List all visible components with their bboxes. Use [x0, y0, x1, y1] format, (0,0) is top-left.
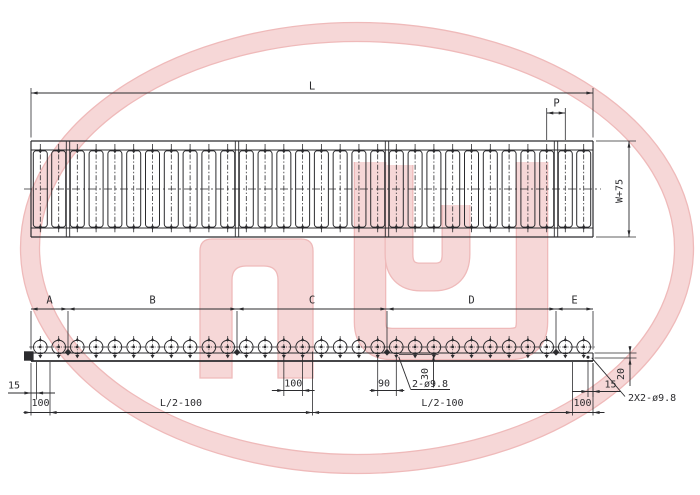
axle-arrow-down	[563, 355, 567, 358]
axle-center-dot	[320, 346, 322, 348]
roller-axle-mark	[489, 148, 493, 153]
axle-arrow-down	[582, 355, 586, 358]
joint-marker-diamond	[553, 349, 560, 356]
axle-center-dot	[133, 346, 135, 348]
roller-axle-mark	[357, 148, 361, 153]
roller-end	[104, 336, 126, 358]
roller-axle-mark	[507, 225, 511, 230]
axle-arrow-up	[244, 338, 248, 341]
axle-center-dot	[245, 346, 247, 348]
axle-center-dot	[283, 346, 285, 348]
roller-end	[179, 336, 201, 358]
axle-arrow-up	[132, 338, 136, 341]
roller-axle-mark	[132, 225, 136, 230]
roller-axle-mark	[188, 148, 192, 153]
roller-axle-mark	[245, 225, 249, 230]
arrowhead	[230, 308, 237, 311]
arrowhead	[31, 92, 38, 95]
roller-axle-mark	[170, 225, 174, 230]
axle-arrow-up	[263, 338, 267, 341]
axle-arrow-up	[319, 338, 323, 341]
roller-end	[235, 336, 257, 358]
roller-axle-mark	[545, 148, 549, 153]
axle-center-dot	[358, 346, 360, 348]
axle-arrow-up	[169, 338, 173, 341]
arrowhead	[547, 112, 554, 115]
arrowhead	[37, 392, 44, 395]
logo-letter-h	[200, 239, 313, 378]
roller-axle-mark	[582, 225, 586, 230]
roller-axle-mark	[413, 148, 417, 153]
roller-axle-mark	[489, 225, 493, 230]
axle-center-dot	[39, 346, 41, 348]
arrowhead	[387, 308, 394, 311]
roller-axle-mark	[320, 225, 324, 230]
roller-end	[142, 336, 164, 358]
axle-center-dot	[95, 346, 97, 348]
axle-center-dot	[58, 346, 60, 348]
roller-axle-mark	[526, 148, 530, 153]
axle-center-dot	[508, 346, 510, 348]
end-mounting-hole	[587, 356, 590, 359]
dim-label-width: W+75	[615, 179, 626, 203]
axle-arrow-up	[151, 338, 155, 341]
axle-center-dot	[546, 346, 548, 348]
dim-label-right-hole-pitch: 100	[573, 398, 591, 409]
axle-arrow-up	[113, 338, 117, 341]
roller-end	[85, 336, 107, 358]
axle-center-dot	[527, 346, 529, 348]
arrowhead	[24, 392, 31, 395]
axle-center-dot	[339, 346, 341, 348]
logo-letter-q-tail	[399, 165, 456, 277]
arrowhead	[68, 308, 75, 311]
arrowhead	[303, 389, 310, 392]
axle-center-dot	[564, 346, 566, 348]
conveyor-plan-view	[24, 141, 601, 237]
roller-axle-mark	[151, 148, 155, 153]
roller-axle-mark	[320, 148, 324, 153]
roller-axle-mark	[57, 225, 61, 230]
roller-axle-mark	[94, 148, 98, 153]
roller-axle-mark	[226, 225, 230, 230]
axle-center-dot	[301, 346, 303, 348]
axle-arrow-down	[38, 355, 42, 358]
technical-drawing-canvas: LPW+75ABCDE10090302-ø9.820152X2-ø9.81510…	[0, 0, 700, 495]
axle-center-dot	[470, 346, 472, 348]
arrowhead	[586, 308, 593, 311]
arrowhead	[371, 389, 378, 392]
end-stop-plate	[24, 351, 34, 360]
axle-center-dot	[170, 346, 172, 348]
arrowhead	[50, 411, 57, 414]
arrowhead	[396, 389, 403, 392]
roller-axle-mark	[432, 148, 436, 153]
arrowhead	[237, 308, 244, 311]
arrowhead	[549, 308, 556, 311]
roller-axle-mark	[432, 225, 436, 230]
dim-label-end-hole-depth: 20	[616, 368, 627, 380]
roller-axle-mark	[564, 225, 568, 230]
roller-axle-mark	[507, 148, 511, 153]
roller-axle-mark	[395, 148, 399, 153]
axle-center-dot	[452, 346, 454, 348]
axle-center-dot	[395, 346, 397, 348]
roller-axle-mark	[113, 148, 117, 153]
arrowhead	[556, 308, 563, 311]
roller-end	[123, 336, 145, 358]
roller-axle-mark	[582, 148, 586, 153]
roller-axle-mark	[301, 148, 305, 153]
roller-axle-mark	[338, 148, 342, 153]
section-label-c: C	[309, 295, 315, 307]
joint-marker-diamond	[234, 349, 241, 356]
roller-end	[329, 336, 351, 358]
arrowhead	[277, 389, 284, 392]
axle-arrow-down	[263, 355, 267, 358]
axle-arrow-down	[319, 355, 323, 358]
roller-axle-mark	[39, 148, 43, 153]
axle-arrow-up	[582, 338, 586, 341]
dim-label-right-half-length: L/2-100	[421, 398, 463, 409]
roller-axle-mark	[282, 148, 286, 153]
roller-end	[254, 336, 276, 358]
axle-center-dot	[264, 346, 266, 348]
axle-arrow-up	[188, 338, 192, 341]
roller-axle-mark	[151, 225, 155, 230]
roller-axle-mark	[94, 225, 98, 230]
axle-center-dot	[208, 346, 210, 348]
roller-axle-mark	[226, 148, 230, 153]
section-label-d: D	[468, 295, 474, 307]
arrowhead	[24, 411, 31, 414]
roller-axle-mark	[132, 148, 136, 153]
arrowhead	[313, 411, 320, 414]
roller-end	[573, 336, 595, 358]
axle-arrow-down	[113, 355, 117, 358]
roller-axle-mark	[263, 225, 267, 230]
dim-label-left-end-hole: 15	[8, 381, 20, 392]
dim-label-left-hole-pitch: 100	[31, 398, 49, 409]
roller-axle-mark	[564, 148, 568, 153]
dim-label-mid-pitch: 100	[284, 379, 302, 390]
axle-center-dot	[433, 346, 435, 348]
axle-center-dot	[414, 346, 416, 348]
axle-center-dot	[489, 346, 491, 348]
arrowhead	[628, 230, 631, 237]
arrowhead	[559, 112, 566, 115]
dim-label-pitch: P	[553, 98, 559, 110]
axle-arrow-down	[57, 355, 61, 358]
arrowhead	[61, 308, 68, 311]
roller-axle-mark	[301, 225, 305, 230]
axle-center-dot	[583, 346, 585, 348]
axle-center-dot	[151, 346, 153, 348]
note-joint-holes: 2-ø9.8	[412, 379, 448, 390]
arrowhead	[593, 411, 600, 414]
roller-axle-mark	[170, 148, 174, 153]
roller-axle-mark	[413, 225, 417, 230]
note-end-holes: 2X2-ø9.8	[628, 393, 676, 404]
roller-axle-mark	[245, 148, 249, 153]
roller-axle-mark	[338, 225, 342, 230]
roller-end	[160, 336, 182, 358]
roller-axle-mark	[113, 225, 117, 230]
roller-axle-mark	[207, 148, 211, 153]
axle-center-dot	[76, 346, 78, 348]
roller-axle-mark	[451, 148, 455, 153]
section-label-e: E	[571, 295, 577, 307]
axle-center-dot	[189, 346, 191, 348]
axle-arrow-down	[545, 355, 549, 358]
roller-axle-mark	[188, 225, 192, 230]
roller-end	[310, 336, 332, 358]
roller-conveyor-drawing: LPW+75ABCDE10090302-ø9.820152X2-ø9.81510…	[0, 0, 700, 495]
axle-arrow-up	[75, 338, 79, 341]
axle-arrow-down	[188, 355, 192, 358]
axle-arrow-up	[38, 338, 42, 341]
axle-arrow-down	[132, 355, 136, 358]
axle-arrow-down	[338, 355, 342, 358]
axle-arrow-up	[94, 338, 98, 341]
section-label-b: B	[149, 295, 155, 307]
axle-arrow-down	[94, 355, 98, 358]
hq-logo-watermark	[21, 23, 694, 474]
axle-center-dot	[227, 346, 229, 348]
axle-center-dot	[377, 346, 379, 348]
section-label-a: A	[46, 295, 53, 307]
axle-arrow-down	[169, 355, 173, 358]
axle-arrow-down	[151, 355, 155, 358]
dim-label-left-half-length: L/2-100	[160, 398, 202, 409]
axle-arrow-down	[357, 355, 361, 358]
dim-label-length: L	[309, 81, 315, 93]
roller-axle-mark	[470, 148, 474, 153]
roller-axle-mark	[207, 225, 211, 230]
roller-axle-mark	[376, 148, 380, 153]
axle-center-dot	[114, 346, 116, 348]
axle-arrow-up	[338, 338, 342, 341]
arrowhead	[306, 411, 313, 414]
roller-axle-mark	[282, 225, 286, 230]
axle-arrow-down	[244, 355, 248, 358]
dim-label-joint-pitch: 90	[378, 379, 390, 390]
roller-axle-mark	[263, 148, 267, 153]
roller-axle-mark	[76, 225, 80, 230]
axle-arrow-up	[563, 338, 567, 341]
